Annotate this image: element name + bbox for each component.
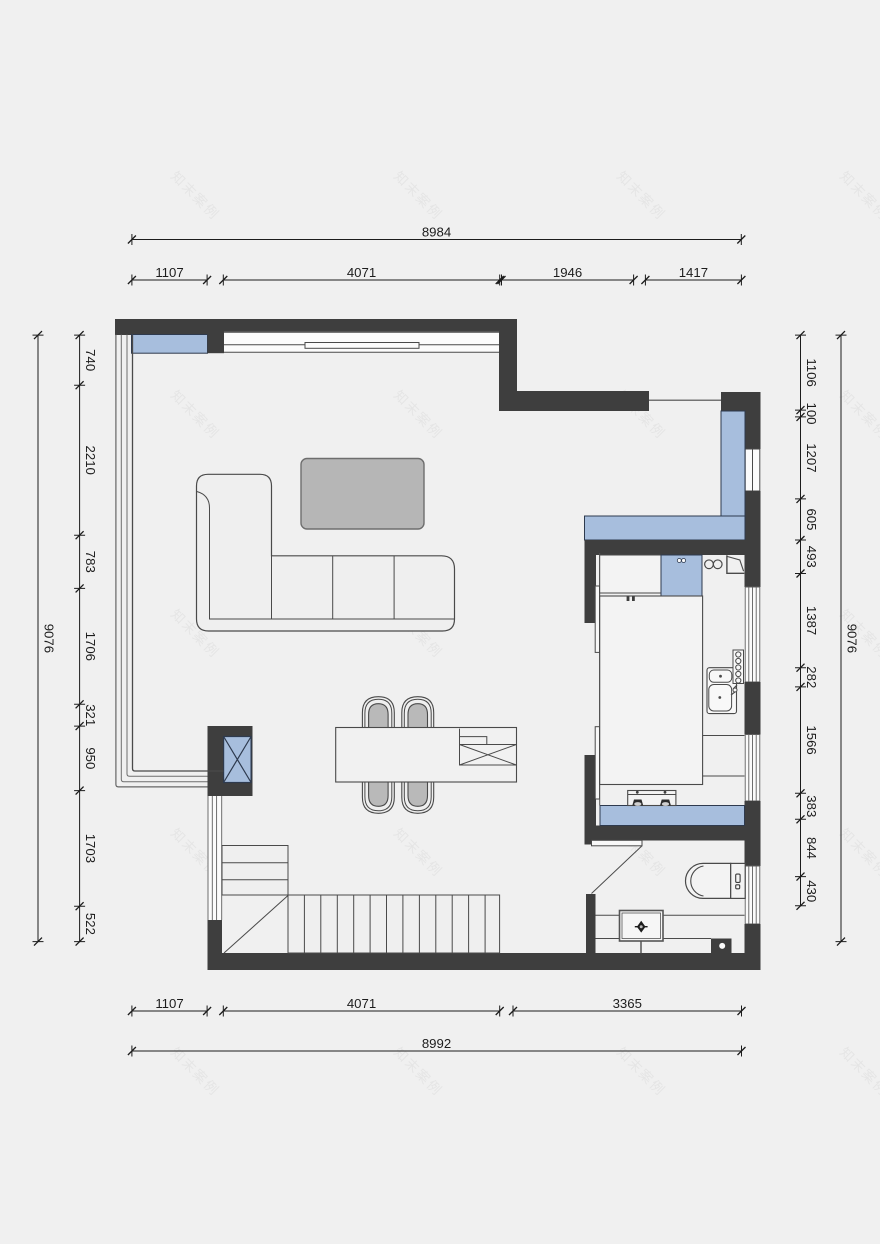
svg-text:3365: 3365 — [613, 996, 642, 1011]
svg-text:740: 740 — [83, 349, 98, 371]
svg-text:4071: 4071 — [347, 265, 376, 280]
svg-text:2210: 2210 — [83, 446, 98, 475]
svg-text:321: 321 — [83, 704, 98, 726]
svg-text:950: 950 — [83, 747, 98, 769]
svg-text:1946: 1946 — [553, 265, 582, 280]
svg-text:8992: 8992 — [422, 1036, 451, 1051]
svg-text:1703: 1703 — [83, 834, 98, 863]
svg-text:844: 844 — [804, 837, 819, 859]
svg-text:430: 430 — [804, 880, 819, 902]
svg-text:8984: 8984 — [422, 225, 451, 240]
svg-text:1107: 1107 — [155, 265, 183, 280]
svg-text:1107: 1107 — [155, 996, 183, 1011]
svg-text:1106: 1106 — [804, 358, 819, 386]
svg-text:1207: 1207 — [804, 443, 819, 472]
svg-text:9076: 9076 — [845, 624, 860, 653]
svg-text:383: 383 — [804, 795, 819, 817]
svg-text:1387: 1387 — [804, 606, 819, 635]
svg-text:1417: 1417 — [679, 265, 708, 280]
svg-text:605: 605 — [804, 508, 819, 530]
svg-text:493: 493 — [804, 546, 819, 568]
svg-text:4071: 4071 — [347, 996, 376, 1011]
svg-text:783: 783 — [83, 551, 98, 573]
svg-text:1566: 1566 — [804, 725, 819, 754]
svg-text:1706: 1706 — [83, 632, 98, 661]
svg-text:522: 522 — [83, 913, 98, 935]
svg-text:100: 100 — [804, 402, 819, 424]
svg-text:9076: 9076 — [42, 624, 57, 653]
svg-text:282: 282 — [804, 666, 819, 688]
